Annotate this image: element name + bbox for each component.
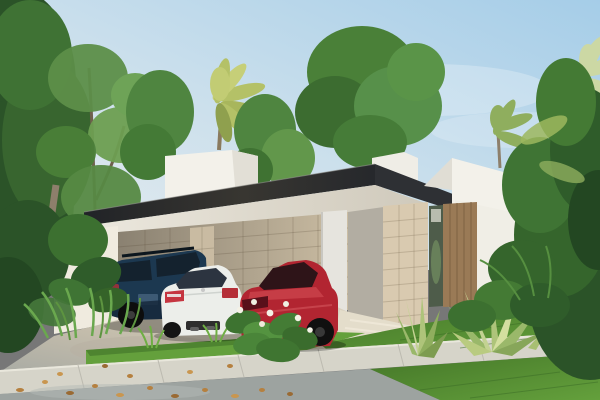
sedan-taillight-right [222, 288, 238, 298]
wood-door [443, 202, 477, 307]
sidelight-transom [431, 209, 441, 222]
sedan-badge [201, 288, 205, 292]
architectural-render [0, 0, 600, 400]
coupe-hub [315, 327, 325, 337]
road-patch [30, 384, 210, 400]
sedan-exhaust-left [190, 327, 199, 331]
entry-recess-wall [348, 207, 384, 330]
sedan-taillight-stripe [167, 294, 181, 297]
sidelight-plant-reflection [431, 240, 441, 284]
sedan-wheel [163, 322, 181, 338]
